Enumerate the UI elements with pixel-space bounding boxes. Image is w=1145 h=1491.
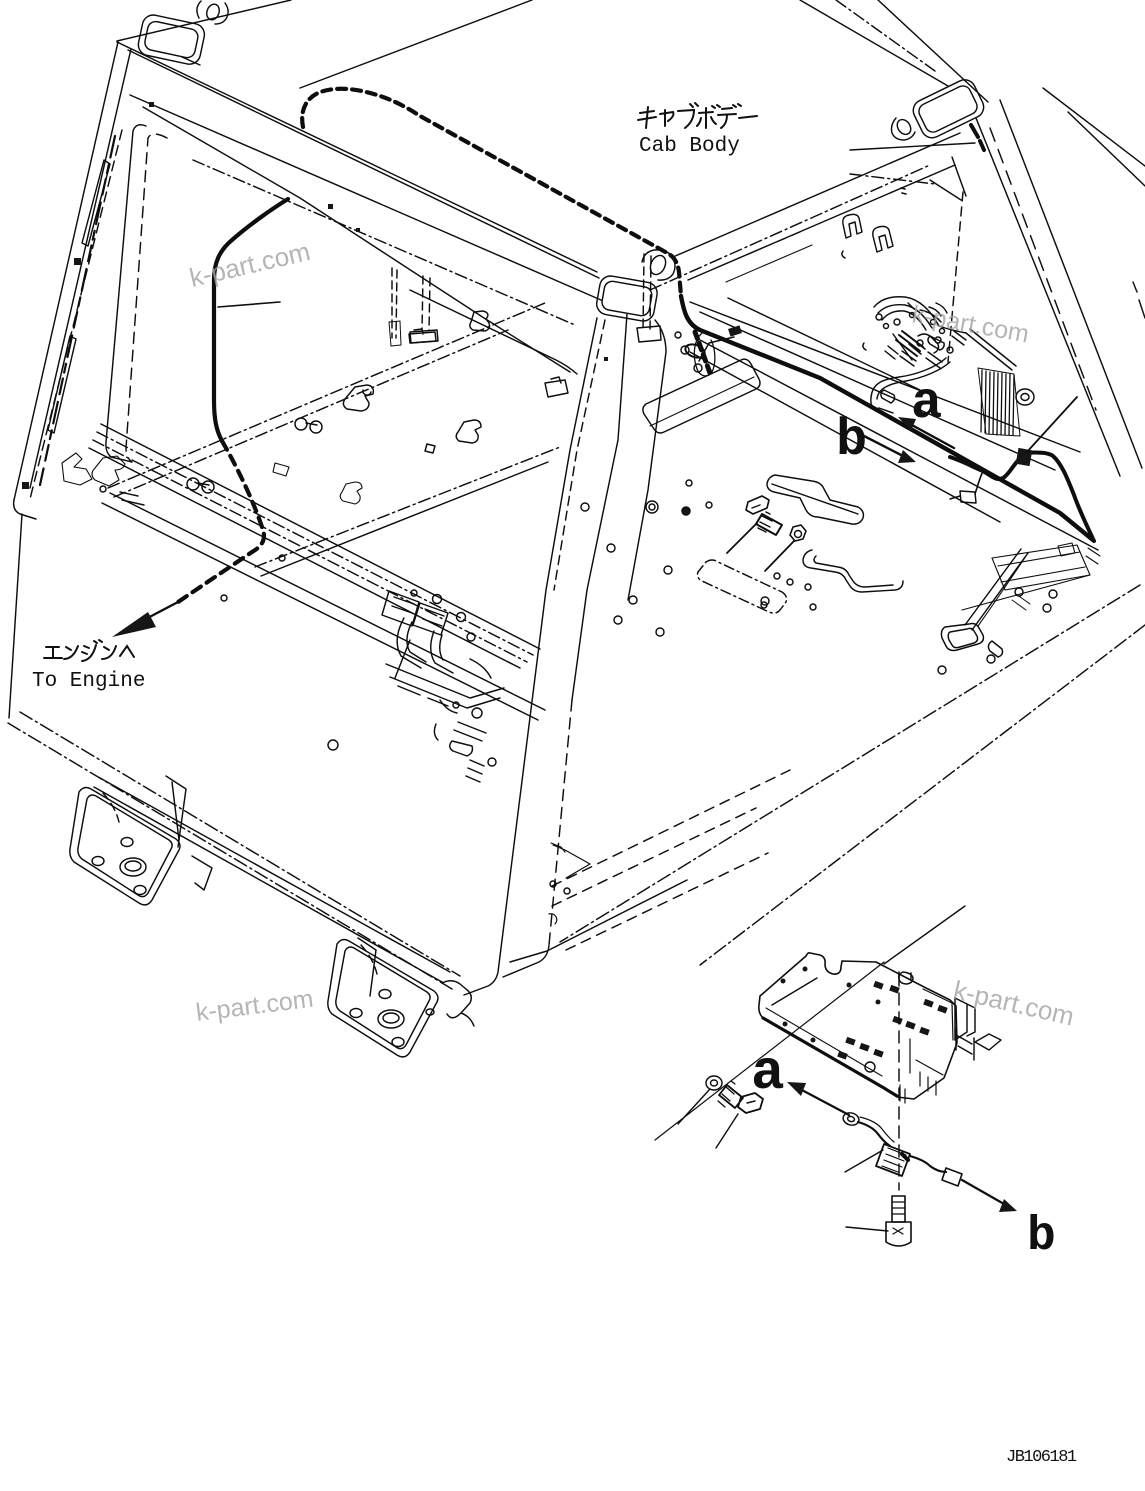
svg-text:To Engine: To Engine [32,670,145,693]
svg-text:k-part.com: k-part.com [951,975,1077,1032]
svg-text:a: a [911,374,942,433]
svg-text:JB106181: JB106181 [1006,1448,1077,1467]
svg-text:Cab Body: Cab Body [639,135,740,158]
svg-text:b: b [1027,1210,1056,1264]
svg-text:k-part.com: k-part.com [187,236,313,293]
svg-text:a: a [751,1041,785,1105]
svg-text:k-part.com: k-part.com [194,985,315,1027]
svg-text:b: b [836,411,867,470]
